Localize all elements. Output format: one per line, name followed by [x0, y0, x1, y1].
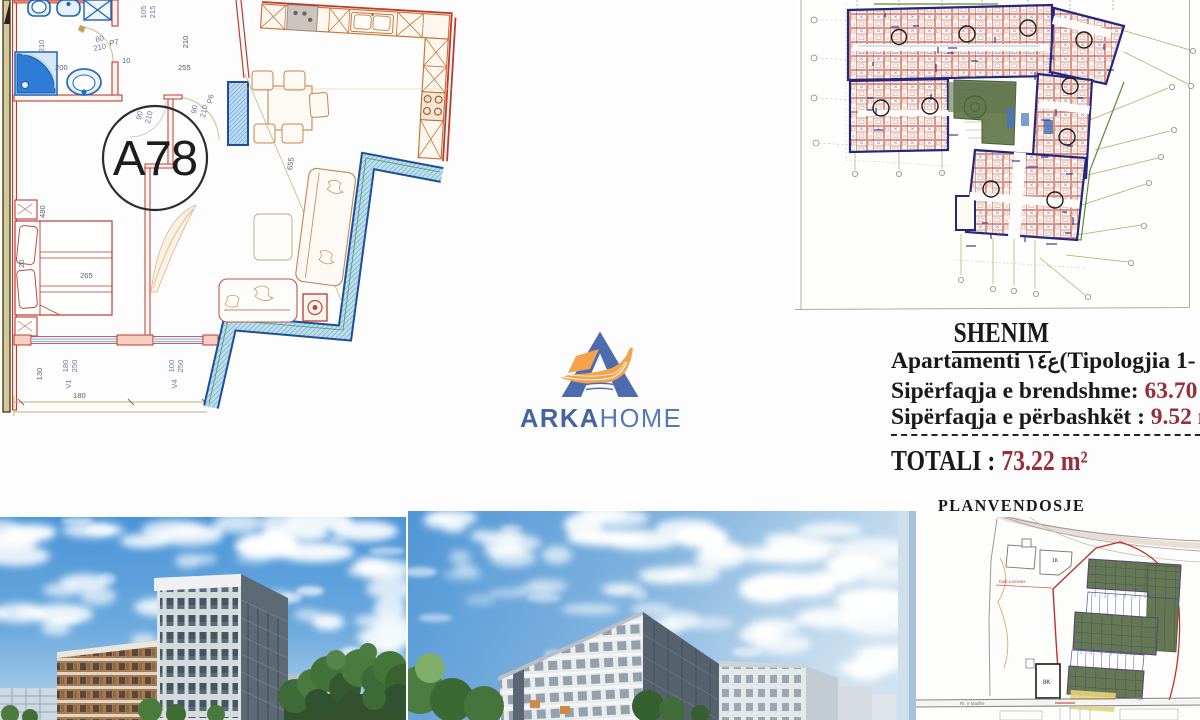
svg-text:210: 210	[198, 104, 209, 118]
svg-text:8K: 8K	[1043, 680, 1050, 686]
svg-text:10: 10	[122, 56, 130, 65]
svg-text:ARKAHOME: ARKAHOME	[520, 405, 682, 433]
svg-text:210: 210	[37, 40, 46, 53]
svg-text:250: 250	[176, 360, 185, 373]
svg-text:265: 265	[80, 271, 93, 280]
svg-text:210: 210	[93, 42, 107, 53]
svg-text:V4: V4	[170, 379, 179, 388]
svg-text:100: 100	[167, 360, 176, 373]
svg-text:215: 215	[148, 6, 157, 19]
svg-text:20: 20	[17, 260, 26, 268]
svg-text:655: 655	[285, 157, 295, 171]
svg-text:480: 480	[38, 205, 47, 218]
svg-text:V1: V1	[64, 379, 73, 388]
svg-text:Kalli Lamines: Kalli Lamines	[999, 579, 1027, 584]
svg-text:210: 210	[143, 110, 154, 124]
svg-text:P6: P6	[205, 93, 216, 104]
svg-text:180: 180	[73, 391, 86, 400]
svg-text:Rr. e Madhe: Rr. e Madhe	[960, 701, 985, 706]
svg-text:1K: 1K	[1052, 558, 1059, 564]
svg-text:A78: A78	[113, 132, 197, 186]
svg-text:P7: P7	[109, 37, 120, 48]
svg-text:105: 105	[139, 6, 148, 19]
svg-text:255: 255	[178, 63, 191, 72]
svg-text:180: 180	[61, 360, 70, 373]
svg-text:200: 200	[55, 63, 68, 72]
svg-text:130: 130	[35, 368, 44, 381]
svg-text:250: 250	[70, 360, 79, 373]
svg-text:210: 210	[181, 36, 190, 49]
